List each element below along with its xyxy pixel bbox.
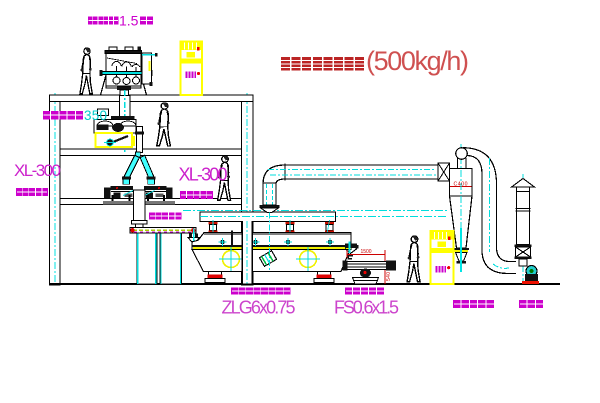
svg-text:350: 350 xyxy=(84,108,107,123)
svg-text:XL-300: XL-300 xyxy=(179,165,228,185)
svg-text:XL-300: XL-300 xyxy=(14,161,61,180)
svg-text:ZLG6x0.75: ZLG6x0.75 xyxy=(222,298,296,318)
svg-text:FS0.6x1.5: FS0.6x1.5 xyxy=(334,298,399,318)
svg-text:540: 540 xyxy=(386,272,392,281)
svg-text:1500: 1500 xyxy=(361,249,372,255)
svg-text:(500kg/h): (500kg/h) xyxy=(366,46,469,76)
svg-text:1.5: 1.5 xyxy=(119,13,139,29)
